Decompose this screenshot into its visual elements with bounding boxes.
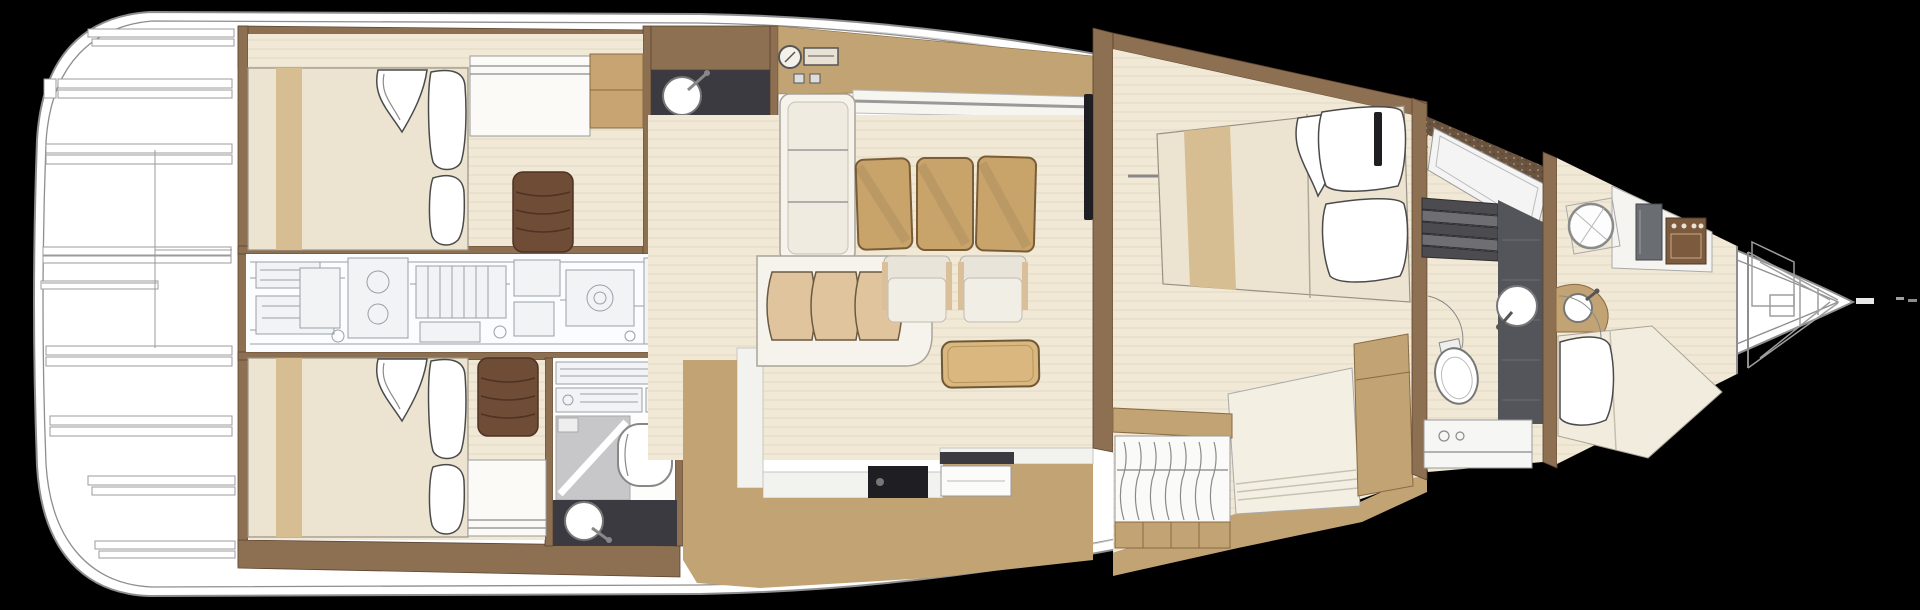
deck-plan-svg: Sailing yacht interior layout — deck pla… <box>0 0 1920 610</box>
dresser <box>470 56 590 136</box>
pillow <box>1323 199 1408 282</box>
wall-tv <box>1374 112 1382 166</box>
settee-cushions <box>767 272 902 340</box>
aft-cabin-port <box>248 34 643 252</box>
bed-runner <box>276 358 302 537</box>
switch-panel-icon <box>794 74 804 83</box>
dresser <box>468 460 546 536</box>
chaise-sofa <box>1228 368 1360 514</box>
bulkhead-wall <box>1093 28 1113 452</box>
bow-fitting-mark <box>1908 299 1917 302</box>
switch-panel-icon <box>810 74 820 83</box>
bathroom-wall-band <box>651 26 770 70</box>
soap-shelf <box>558 418 578 432</box>
tv-panel-salon <box>1084 94 1093 220</box>
open-wardrobe <box>1113 408 1232 548</box>
salon <box>648 94 1093 588</box>
cabinet <box>590 54 643 128</box>
bed-runner <box>1184 126 1236 290</box>
companionway-steps <box>1422 198 1498 261</box>
vanity <box>1424 420 1532 468</box>
bow-fitting-mark <box>1896 297 1904 300</box>
tv-strip <box>940 452 1014 464</box>
bow-fitting <box>1856 298 1874 304</box>
armchair <box>958 256 1028 322</box>
yacht-deck-plan: Sailing yacht interior layout — deck pla… <box>0 0 1920 610</box>
owners-cabin <box>1113 33 1427 576</box>
washbasin <box>565 502 603 540</box>
coffee-table <box>942 340 1040 388</box>
wall-head-bow <box>1543 152 1557 468</box>
washbasin <box>1497 286 1537 326</box>
l-sofa-seat <box>788 102 848 254</box>
aft-cabin-starboard <box>248 358 546 540</box>
pillow <box>1319 107 1406 192</box>
cabinet <box>1354 334 1413 496</box>
dining-chairs <box>855 156 1036 251</box>
bed-runner <box>276 68 302 250</box>
pillow <box>1560 337 1613 425</box>
armchair <box>882 256 952 322</box>
